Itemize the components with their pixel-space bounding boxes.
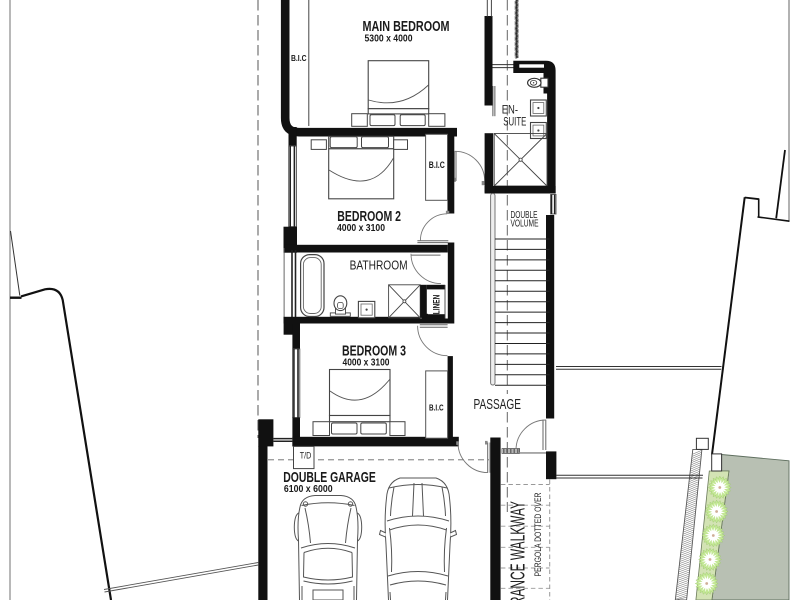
svg-text:BATHROOM: BATHROOM [350,258,408,273]
svg-text:5300 x 4000: 5300 x 4000 [365,33,413,45]
svg-text:B.I.C: B.I.C [429,404,444,413]
svg-text:6100 x 6000: 6100 x 6000 [284,483,333,495]
svg-text:EN-: EN- [502,104,518,116]
svg-text:VOLUME: VOLUME [511,218,539,229]
svg-text:PASSAGE: PASSAGE [474,396,522,413]
svg-text:ENTRANCE WALKWAY: ENTRANCE WALKWAY [507,501,529,600]
svg-text:PERGOLA DOTTED OVER: PERGOLA DOTTED OVER [533,492,543,576]
svg-text:B.I.C: B.I.C [291,54,307,63]
svg-text:SUITE: SUITE [503,117,526,129]
svg-text:T/D: T/D [300,451,312,461]
svg-text:LINEN: LINEN [432,295,443,315]
svg-text:B.I.C: B.I.C [429,160,445,170]
svg-text:4000 x 3100: 4000 x 3100 [337,222,385,234]
svg-text:4000 x 3100: 4000 x 3100 [343,356,390,368]
